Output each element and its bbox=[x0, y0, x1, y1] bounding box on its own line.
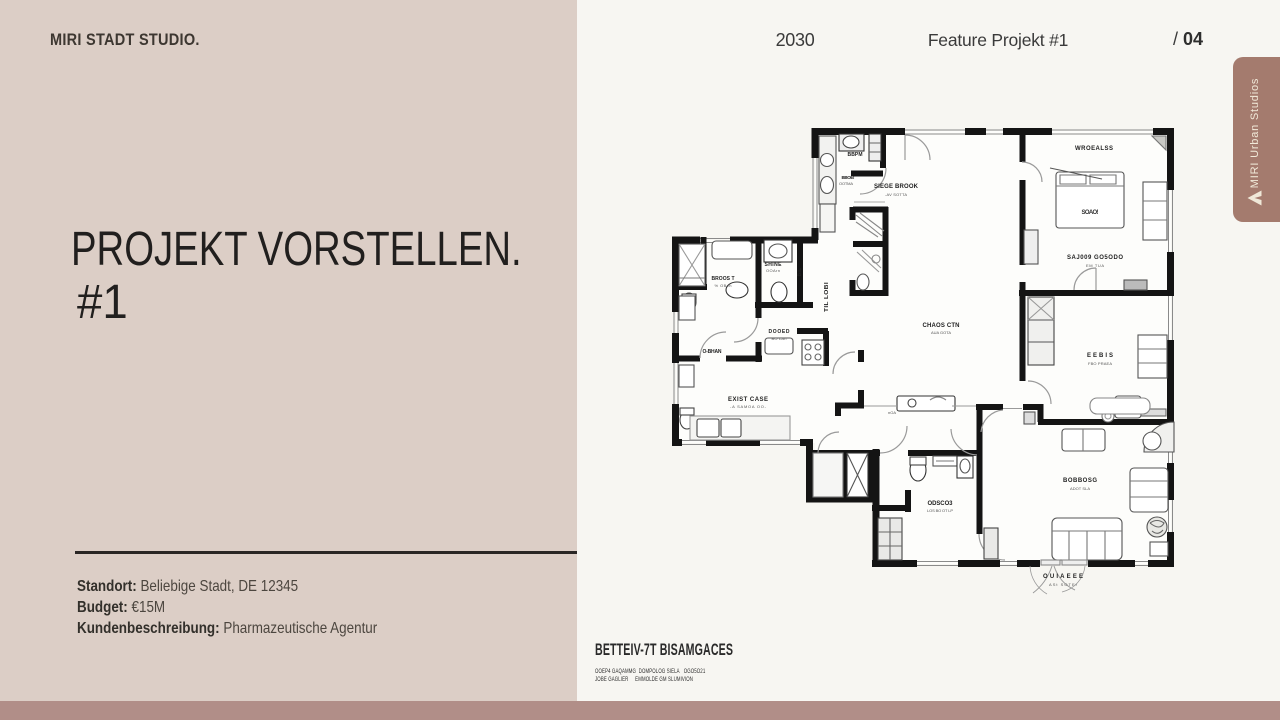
svg-text:LOS BO OT LP: LOS BO OT LP bbox=[927, 508, 953, 513]
svg-text:EEBIS: EEBIS bbox=[1087, 353, 1113, 359]
svg-text:BBOE!: BBOE! bbox=[842, 175, 856, 180]
svg-text:AUA GOTA: AUA GOTA bbox=[931, 330, 951, 335]
svg-text:OOTMA: OOTMA bbox=[839, 181, 853, 186]
svg-text:WROEALSS: WROEALSS bbox=[1075, 146, 1113, 152]
svg-text:O-BHAN: O-BHAN bbox=[703, 349, 722, 355]
svg-text:SAJ009 GO5ODO: SAJ009 GO5ODO bbox=[1067, 255, 1123, 261]
svg-text:BBPM: BBPM bbox=[848, 152, 863, 158]
svg-text:SIEGE BROOK: SIEGE BROOK bbox=[874, 184, 919, 190]
svg-text:EXIST CASE: EXIST CASE bbox=[728, 397, 768, 403]
svg-text:TIL LOBI: TIL LOBI bbox=[824, 282, 830, 312]
svg-text:ODSCO3: ODSCO3 bbox=[928, 501, 954, 507]
svg-text:DOOED: DOOED bbox=[769, 329, 790, 335]
svg-text:CHAOS CTN: CHAOS CTN bbox=[923, 323, 960, 329]
svg-text:-AV SOTTA: -AV SOTTA bbox=[885, 192, 907, 197]
svg-text:BROOS T: BROOS T bbox=[712, 276, 735, 282]
svg-text:ASt SOTEr: ASt SOTEr bbox=[1049, 582, 1078, 587]
svg-text:FBO PRAEA: FBO PRAEA bbox=[1088, 361, 1112, 366]
svg-text:-A SAMOA OO-: -A SAMOA OO- bbox=[730, 404, 767, 409]
svg-text:BOBBOSG: BOBBOSG bbox=[1063, 478, 1097, 484]
svg-text:SOAO!: SOAO! bbox=[1082, 210, 1099, 216]
svg-text:EM TUA: EM TUA bbox=[1086, 263, 1104, 268]
svg-text:% OBcn: % OBcn bbox=[715, 283, 732, 288]
svg-text:OOArn: OOArn bbox=[766, 268, 780, 273]
svg-text:BIL: BIL bbox=[797, 268, 803, 277]
svg-text:BO LAn: BO LAn bbox=[772, 336, 787, 341]
svg-text:nOA: nOA bbox=[888, 410, 896, 415]
svg-text:OUIAEEE: OUIAEEE bbox=[1043, 574, 1083, 580]
svg-text:ADOT SLA: ADOT SLA bbox=[1070, 486, 1090, 491]
